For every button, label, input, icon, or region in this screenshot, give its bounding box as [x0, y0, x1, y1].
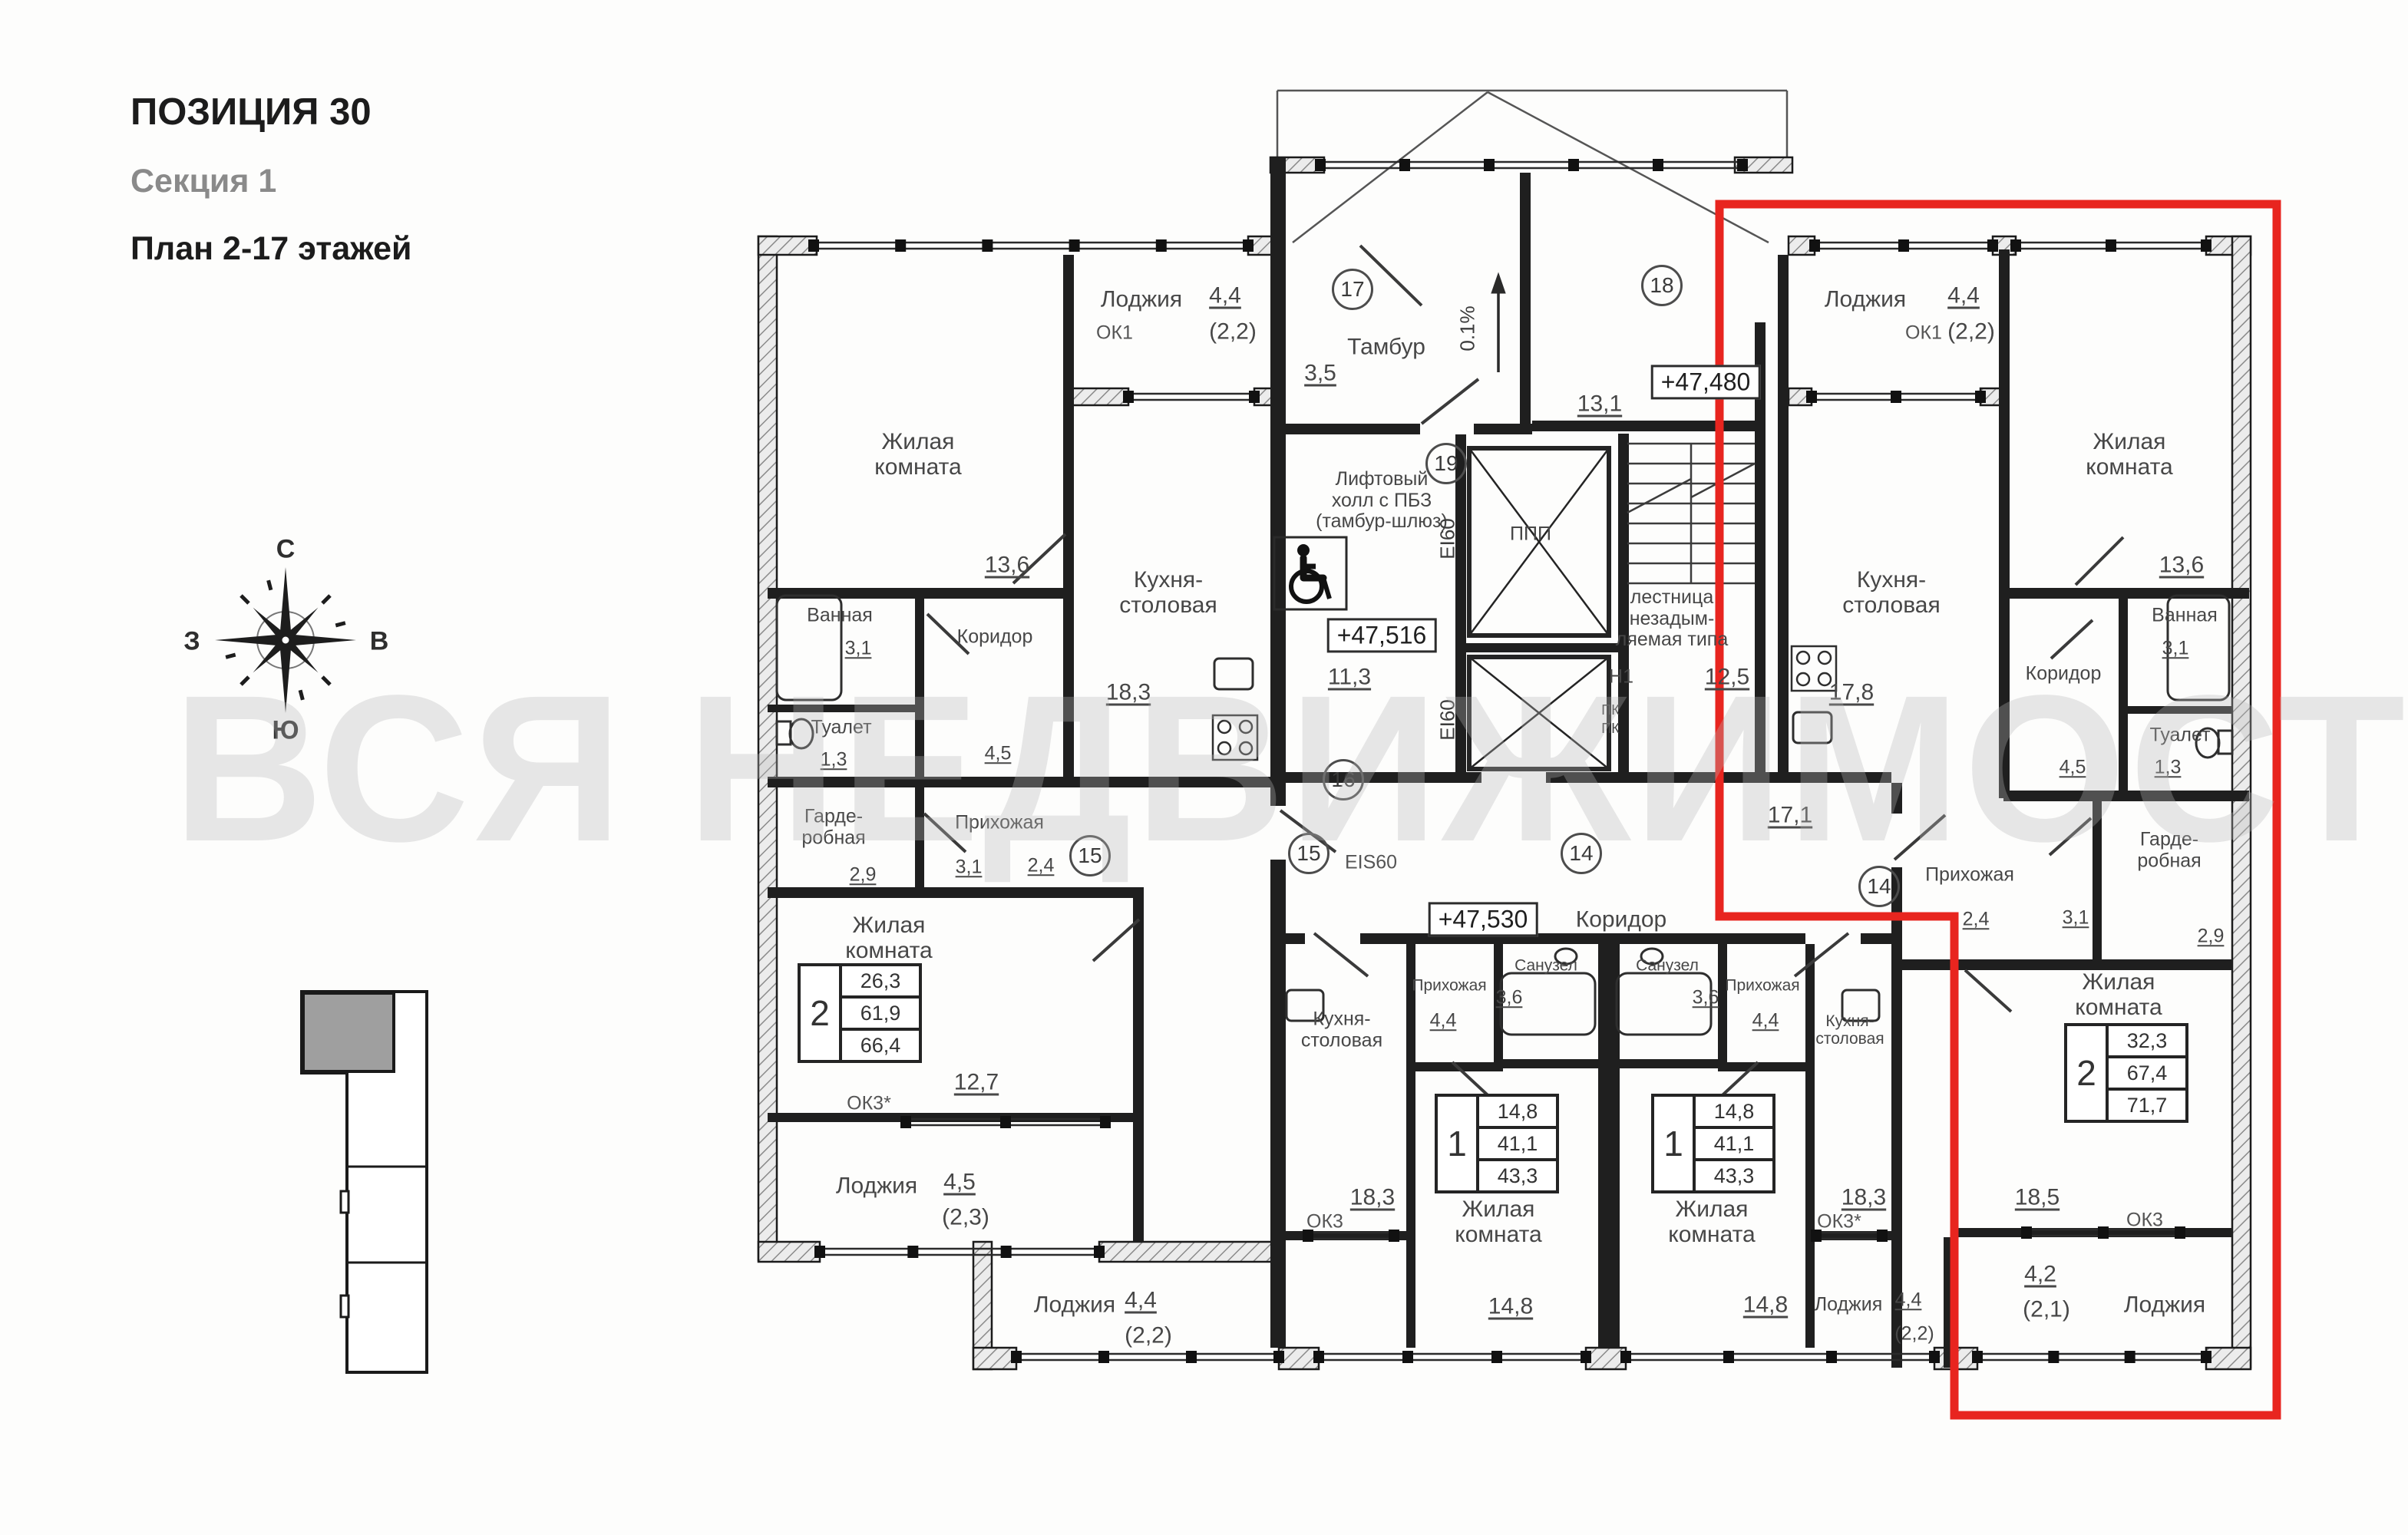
apartment-stats-box: 114,841,143,3 — [1435, 1094, 1559, 1193]
room-name-label: Лоджия — [2124, 1292, 2205, 1318]
apartment-stats-box: 232,367,471,7 — [2064, 1023, 2188, 1123]
area-value-label: 2,9 — [2198, 926, 2225, 947]
area-value-label: 17,8 — [1829, 680, 1874, 705]
area-value-label: 13,1 — [1577, 391, 1622, 417]
loggia-reduced-area-label: (2,3) — [942, 1205, 989, 1230]
room-name-label: ППП — [1510, 523, 1551, 545]
room-name-label: Туалет — [2149, 725, 2210, 746]
unit-number-circle: 19 — [1425, 443, 1467, 484]
level-mark: +47,530 — [1429, 902, 1538, 936]
area-value-label: 17,1 — [1768, 803, 1812, 828]
unit-number-circle: 18 — [1641, 265, 1683, 306]
area-value-label: 18,5 — [2015, 1185, 2060, 1210]
area-value-label: 4,4 — [1209, 283, 1241, 309]
area-value-label: 3,1 — [956, 857, 983, 878]
note-label: ПК — [1601, 703, 1619, 718]
room-name-label: Жилая комната — [2075, 969, 2162, 1020]
room-name-label: лестница незадым- ляемая типа — [1616, 587, 1728, 651]
room-name-label: Прихожая — [1725, 976, 1799, 994]
stats-total-value: 71,7 — [2109, 1091, 2185, 1120]
window-code-label: ОК3* — [1817, 1211, 1861, 1233]
room-name-label: Кухня- столовая — [1119, 567, 1217, 618]
stats-total-value: 66,4 — [842, 1031, 919, 1060]
room-name-label: Жилая комната — [2086, 429, 2172, 480]
area-value-label: 4,4 — [1895, 1289, 1922, 1311]
area-value-label: 4,2 — [2024, 1262, 2056, 1287]
plan-labels-layer: Лоджия4,4(2,2)ОК1Жилая комната13,6Ванная… — [0, 0, 2408, 1535]
window-code-label: ОК3* — [847, 1093, 891, 1114]
stats-area-value: 41,1 — [1479, 1129, 1556, 1161]
room-name-label: Жилая комната — [1668, 1197, 1755, 1247]
area-value-label: 4,5 — [2060, 757, 2086, 778]
room-name-label: Лоджия — [1101, 287, 1182, 312]
area-value-label: 13,6 — [985, 553, 1029, 578]
room-name-label: Лоджия — [1815, 1294, 1883, 1315]
loggia-reduced-area-label: (2,2) — [1947, 319, 1995, 345]
area-value-label: 12,7 — [954, 1070, 999, 1095]
rotated-label: EI60 — [1437, 699, 1459, 741]
area-value-label: 2,9 — [850, 864, 877, 886]
unit-number-circle: 14 — [1858, 866, 1900, 907]
area-value-label: 12,5 — [1705, 665, 1749, 690]
room-name-label: Коридор — [1576, 907, 1666, 933]
window-code-label: ОК3 — [2126, 1210, 2163, 1231]
unit-number-circle: 16 — [1323, 759, 1364, 801]
area-value-label: 14,8 — [1743, 1292, 1788, 1318]
loggia-reduced-area-label: (2,2) — [1125, 1323, 1172, 1348]
floor-plan-page: ПОЗИЦИЯ 30 Секция 1 План 2-17 этажей С Ю… — [0, 0, 2408, 1535]
loggia-reduced-area-label: (2,2) — [1209, 319, 1257, 345]
room-name-label: Тамбур — [1347, 335, 1425, 360]
loggia-reduced-area-label: (2,2) — [1894, 1323, 1934, 1345]
area-value-label: 11,3 — [1328, 665, 1371, 690]
stats-area-value: 67,4 — [2109, 1058, 2185, 1091]
rooms-count: 2 — [801, 966, 842, 1060]
area-value-label: 3,1 — [2063, 907, 2089, 929]
room-name-label: Жилая комната — [845, 913, 932, 963]
level-mark: +47,480 — [1651, 365, 1761, 399]
room-name-label: Жилая комната — [874, 429, 961, 480]
room-name-label: Лифтовый холл с ПБЗ (тамбур-шлюз) — [1316, 469, 1448, 533]
room-name-label: Туалет — [811, 717, 871, 738]
room-name-label: Лоджия — [836, 1174, 917, 1199]
area-value-label: 4,5 — [985, 743, 1012, 764]
rooms-count: 2 — [2067, 1026, 2109, 1120]
room-name-label: Н1 — [1609, 666, 1633, 688]
apartment-stats-box: 226,361,966,4 — [798, 963, 922, 1063]
stats-total-value: 43,3 — [1479, 1161, 1556, 1190]
level-mark: +47,516 — [1327, 618, 1437, 652]
stats-area-value: 61,9 — [842, 999, 919, 1031]
area-value-label: 4,4 — [1947, 283, 1980, 309]
room-name-label: Санузел — [1514, 956, 1577, 974]
stats-living-value: 26,3 — [842, 966, 919, 999]
area-value-label: 13,6 — [2159, 553, 2204, 578]
area-value-label: 3,6 — [1496, 987, 1523, 1008]
stats-living-value: 14,8 — [1696, 1097, 1772, 1129]
window-code-label: ОК3 — [1306, 1211, 1343, 1233]
area-value-label: 18,3 — [1842, 1185, 1886, 1210]
window-code-label: EIS60 — [1345, 852, 1397, 873]
room-name-label: Санузел — [1636, 956, 1699, 974]
area-value-label: 1,3 — [2155, 757, 2182, 778]
room-name-label: Ванная — [2152, 605, 2218, 626]
room-name-label: Коридор — [957, 626, 1033, 648]
room-name-label: Гарде- робная — [2137, 830, 2201, 872]
area-value-label: 18,3 — [1350, 1185, 1395, 1210]
area-value-label: 14,8 — [1488, 1294, 1533, 1319]
stats-total-value: 43,3 — [1696, 1161, 1772, 1190]
room-name-label: Лоджия — [1034, 1292, 1115, 1318]
room-name-label: Прихожая — [1925, 864, 2014, 886]
area-value-label: 3,1 — [2162, 638, 2189, 659]
area-value-label: 2,4 — [1963, 909, 1990, 930]
window-code-label: ОК1 — [1096, 322, 1133, 344]
area-value-label: 3,5 — [1304, 361, 1336, 386]
stats-living-value: 14,8 — [1479, 1097, 1556, 1129]
area-value-label: 2,4 — [1028, 855, 1055, 876]
area-value-label: 1,3 — [821, 749, 847, 771]
area-value-label: 4,4 — [1752, 1010, 1779, 1032]
room-name-label: Гарде- робная — [801, 807, 865, 849]
room-name-label: Лоджия — [1825, 287, 1906, 312]
rooms-count: 1 — [1438, 1097, 1479, 1190]
area-value-label: 4,4 — [1430, 1010, 1457, 1032]
area-value-label: 3,6 — [1693, 987, 1719, 1008]
rotated-label: 0.1% — [1457, 305, 1479, 351]
room-name-label: Жилая комната — [1455, 1197, 1541, 1247]
loggia-reduced-area-label: (2,1) — [2023, 1297, 2070, 1322]
apartment-stats-box: 114,841,143,3 — [1651, 1094, 1775, 1193]
room-name-label: Кухня- столовая — [1815, 1012, 1884, 1048]
room-name-label: Ванная — [807, 605, 873, 626]
area-value-label: 3,1 — [845, 638, 872, 659]
rooms-count: 1 — [1654, 1097, 1696, 1190]
room-name-label: Кухня- столовая — [1301, 1009, 1382, 1051]
unit-number-circle: 17 — [1332, 269, 1373, 310]
area-value-label: 18,3 — [1106, 680, 1151, 705]
room-name-label: Кухня- столовая — [1842, 567, 1941, 618]
area-value-label: 4,4 — [1125, 1288, 1157, 1313]
unit-number-circle: 14 — [1561, 833, 1602, 874]
room-name-label: Коридор — [2026, 663, 2102, 685]
note-label: ПК — [1601, 721, 1619, 737]
room-name-label: Прихожая — [1412, 976, 1486, 994]
rotated-label: EI60 — [1437, 518, 1459, 560]
room-name-label: Прихожая — [955, 812, 1044, 834]
unit-number-circle: 15 — [1069, 835, 1111, 876]
stats-living-value: 32,3 — [2109, 1026, 2185, 1058]
unit-number-circle: 15 — [1288, 833, 1330, 874]
window-code-label: ОК1 — [1905, 322, 1942, 344]
area-value-label: 4,5 — [943, 1170, 976, 1195]
stats-area-value: 41,1 — [1696, 1129, 1772, 1161]
